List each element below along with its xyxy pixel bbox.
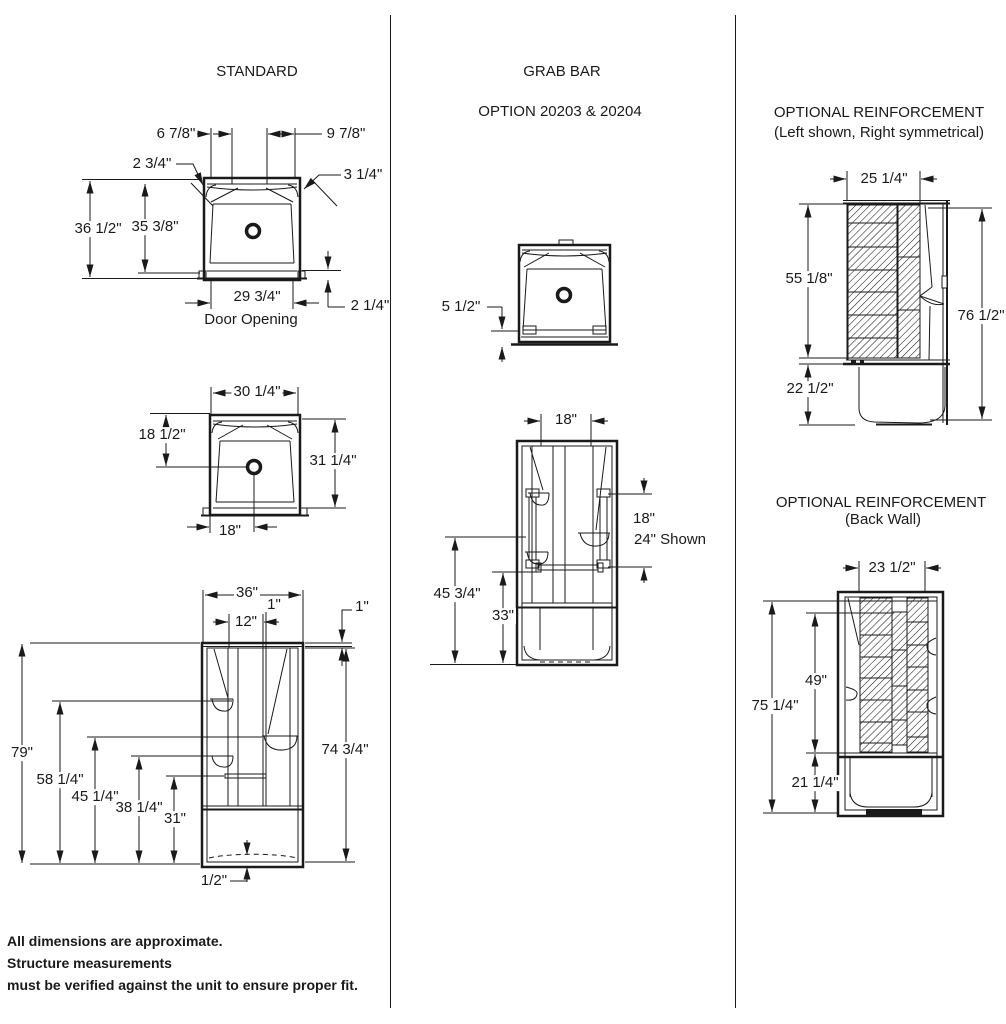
reinf-side-title: OPTIONAL REINFORCEMENT [774, 105, 984, 121]
dim-rb-total: 75 1/4" [749, 698, 800, 714]
grabbar-plan-view [487, 240, 618, 362]
dim-gb-bar-height: 33" [490, 608, 516, 624]
dim-rs-lower: 22 1/2" [784, 381, 835, 397]
dim-std-total-height: 79" [9, 745, 35, 761]
dim-std-front-recess: 12" [235, 614, 257, 630]
dim-std-door-width: 29 3/4" [233, 289, 280, 305]
dim-std-top-right: 9 7/8" [327, 126, 366, 142]
dim-rb-width: 23 1/2" [866, 560, 917, 576]
dim-gb-center-width: 18" [555, 412, 577, 428]
dim-std-front-width: 36" [234, 585, 260, 601]
dim-std-drain-left: 18" [219, 523, 241, 539]
standard-front-view [22, 590, 355, 882]
dim-rs-upper: 55 1/8" [783, 271, 834, 287]
reinf-back-subtitle: (Back Wall) [845, 512, 921, 528]
dim-rb-lower: 21 1/4" [789, 775, 840, 791]
door-opening-label: Door Opening [204, 312, 297, 328]
standard-title: STANDARD [216, 64, 297, 80]
dim-std-front-flange: 1" [355, 599, 369, 615]
dim-std-outer-height: 36 1/2" [72, 221, 123, 237]
dim-std-front-offset: 1" [267, 597, 281, 613]
footer-note-line3: must be verified against the unit to ens… [7, 977, 358, 993]
reinf-side-subtitle: (Left shown, Right symmetrical) [774, 125, 984, 141]
footer-note-line2: Structure measurements [7, 955, 172, 971]
dim-std-plan-width: 30 1/4" [231, 384, 282, 400]
dim-gb-front-depth: 5 1/2" [442, 299, 481, 315]
grabbar-title: GRAB BAR [523, 64, 601, 80]
dim-std-corner-left: 2 3/4" [133, 156, 172, 172]
dim-std-plan-height: 31 1/4" [307, 453, 358, 469]
dim-std-shelf-lower: 38 1/4" [113, 800, 164, 816]
dim-std-threshold: 2 1/4" [351, 298, 390, 314]
reinf-back-title: OPTIONAL REINFORCEMENT [776, 495, 986, 511]
dim-rs-width: 25 1/4" [858, 171, 909, 187]
dim-std-top-left: 6 7/8" [157, 126, 196, 142]
dim-gb-bar-shown: 24" Shown [634, 532, 706, 548]
dim-std-bar-height: 31" [162, 811, 188, 827]
standard-plan-top-view [82, 128, 345, 309]
dim-std-inner-height: 35 3/8" [129, 219, 180, 235]
dim-std-inner-front-height: 74 3/4" [319, 742, 370, 758]
column-dividers [391, 15, 736, 1008]
footer-note-line1: All dimensions are approximate. [7, 933, 223, 949]
dim-std-base-lip: 1/2" [201, 873, 227, 889]
dim-std-shelf-upper: 58 1/4" [34, 772, 85, 788]
dim-gb-left-height: 45 3/4" [431, 586, 482, 602]
dim-gb-bar-length: 18" [633, 511, 655, 527]
dim-rb-panel: 49" [803, 673, 829, 689]
spec-sheet: STANDARD 6 7/8" 9 7/8" 2 3/4" 3 1/4" 36 … [0, 0, 1006, 1024]
dim-std-drain-back: 18 1/2" [136, 427, 187, 443]
grabbar-front-view [430, 414, 652, 665]
grabbar-subtitle: OPTION 20203 & 20204 [478, 104, 641, 120]
dim-rs-total: 76 1/2" [955, 308, 1006, 324]
dim-std-corner-right: 3 1/4" [344, 167, 383, 183]
